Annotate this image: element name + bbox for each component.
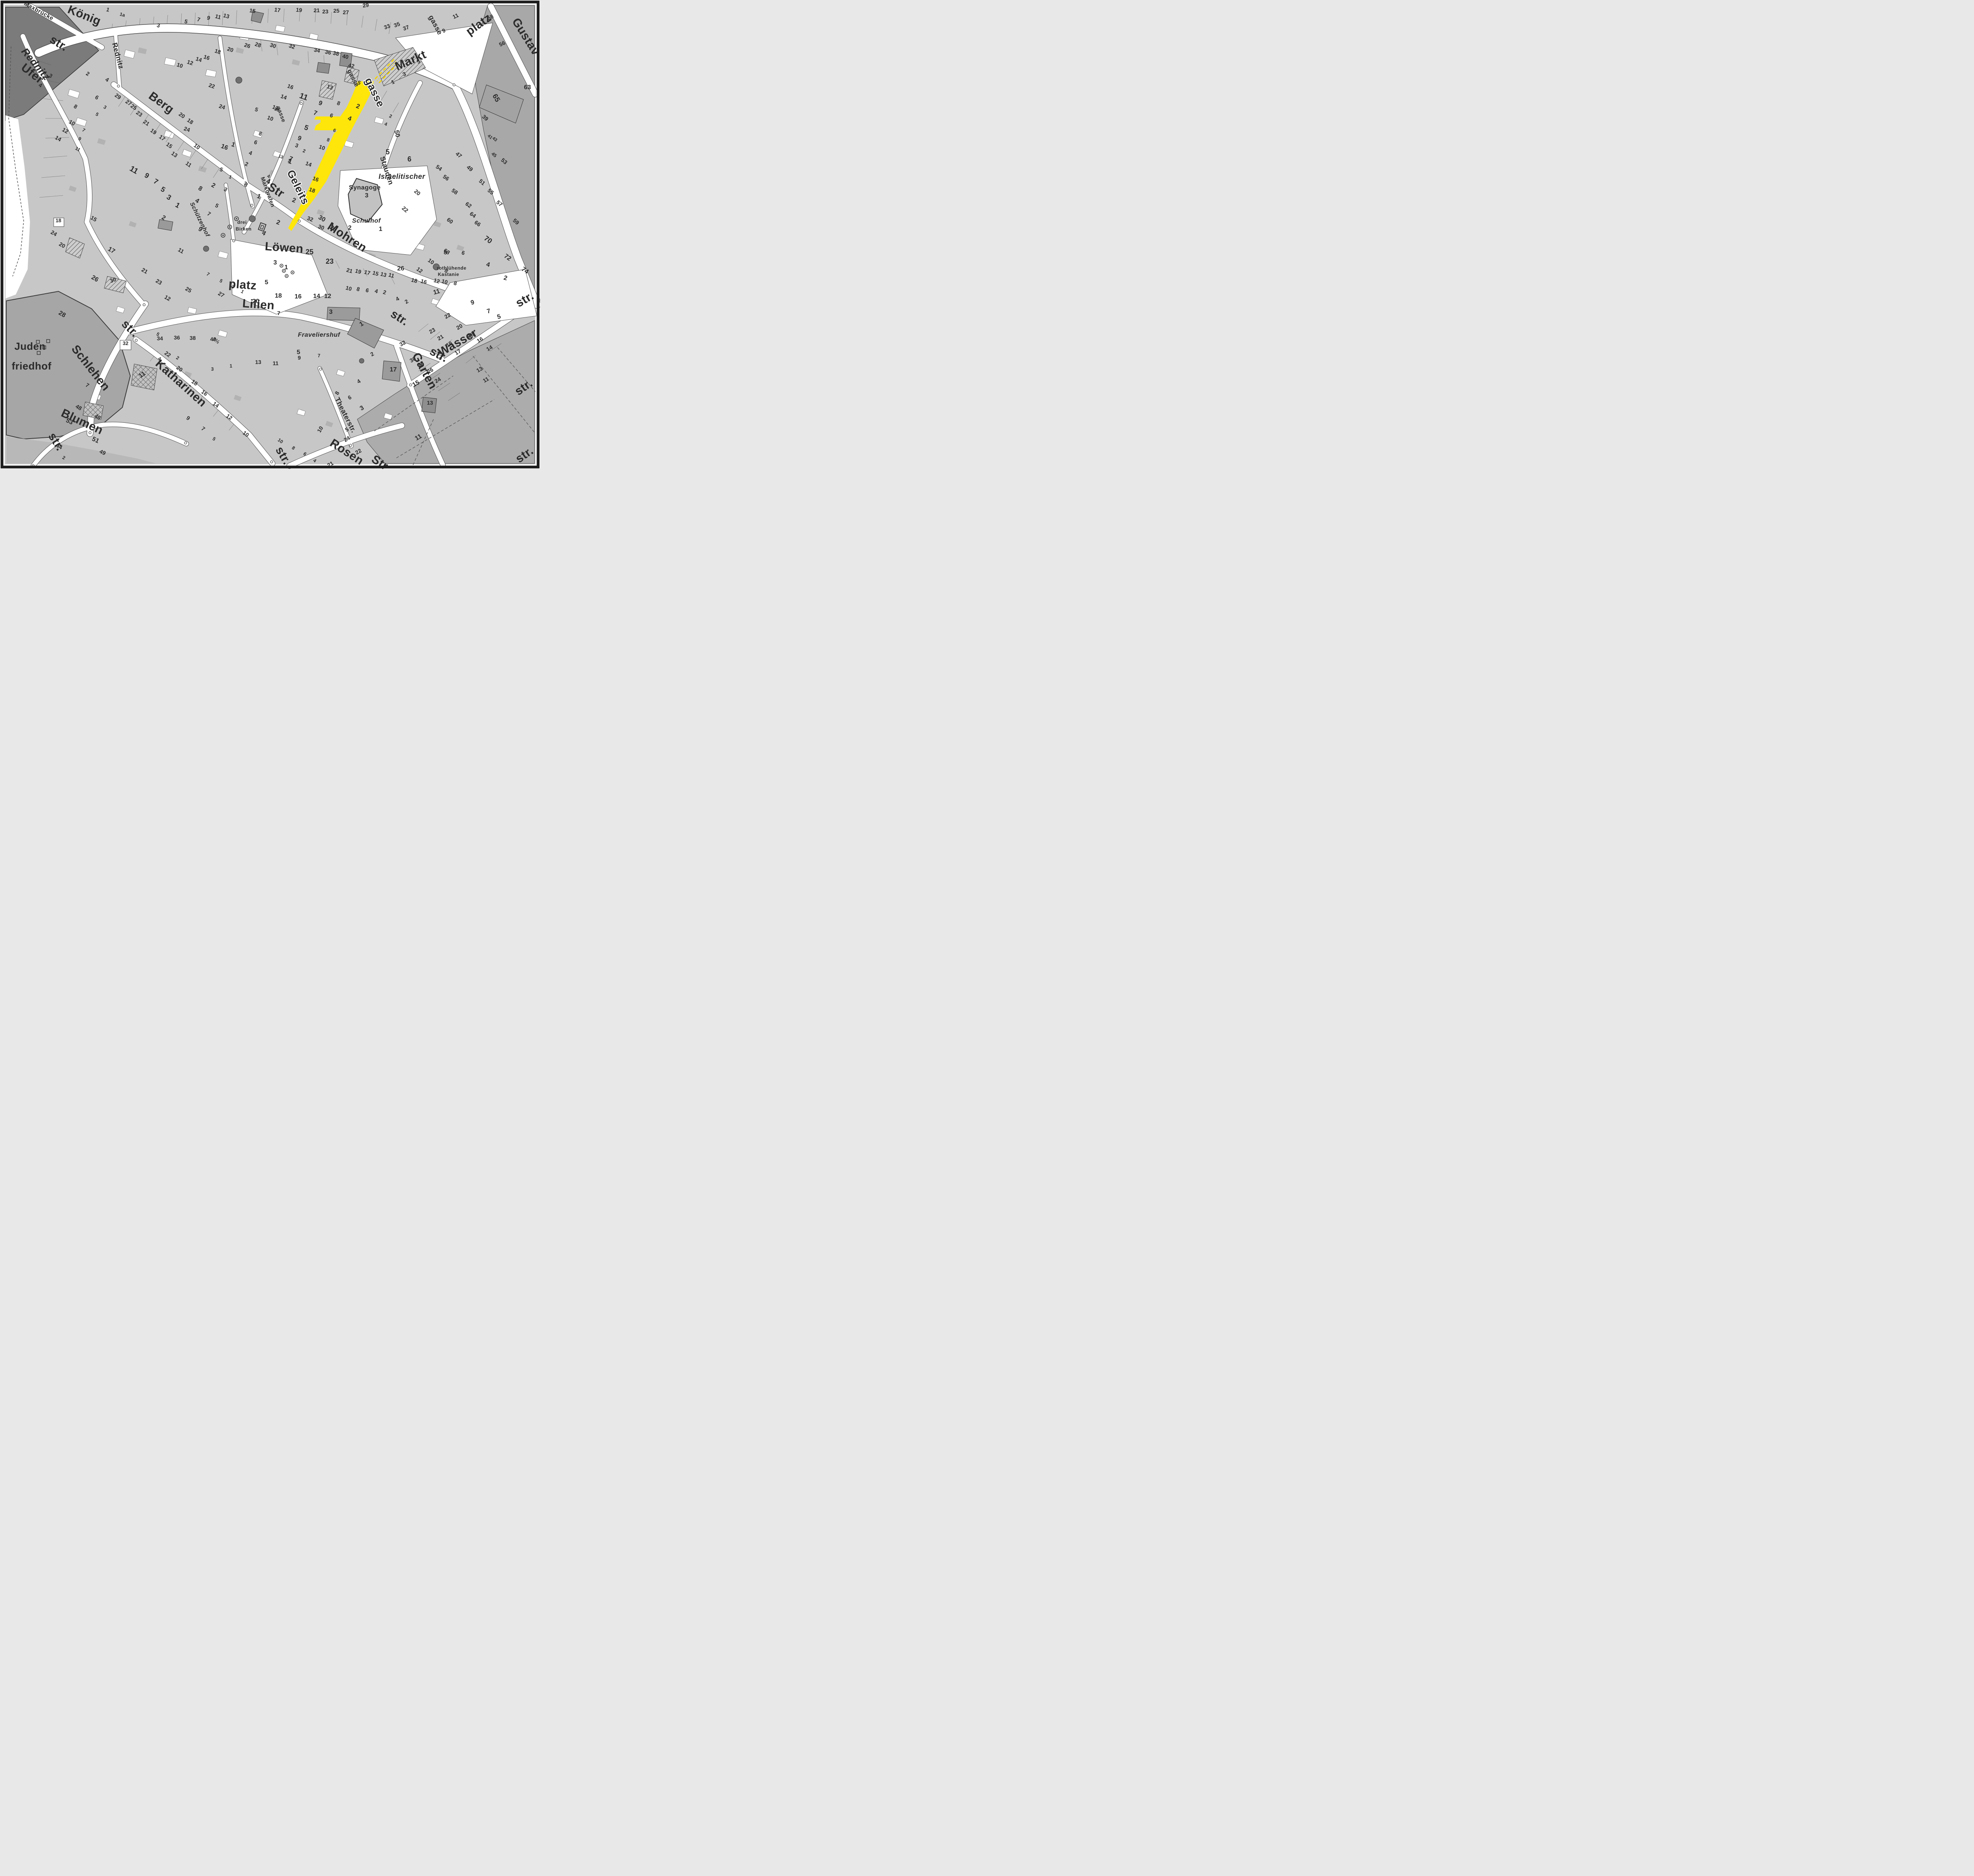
tree-icon: [359, 358, 364, 363]
house-number: 38: [190, 335, 196, 341]
house-number: 1: [230, 363, 233, 369]
city-map: 11a3579111315171921232527293335371012141…: [0, 0, 540, 469]
street-label: Lilien: [242, 297, 275, 312]
tree-ring-center: [222, 234, 224, 236]
boundary-stone-icon: [143, 304, 145, 306]
map-canvas: 11a3579111315171921232527293335371012141…: [0, 0, 540, 469]
boundary-stone-icon: [135, 339, 137, 341]
house-number: 27: [343, 9, 349, 15]
landmark-label: Juden: [14, 340, 45, 352]
house-number: 13: [427, 400, 433, 406]
dark-building-a: [317, 62, 330, 73]
tree-icon: [203, 246, 209, 251]
house-number: 9: [298, 355, 301, 361]
landmark-label: Kastanie: [438, 272, 459, 277]
house-number: 12: [324, 293, 331, 300]
boundary-stone-icon: [409, 384, 412, 386]
house-number: 16: [295, 293, 302, 300]
boundary-stone-icon: [184, 442, 187, 444]
house-number: 21: [313, 7, 320, 13]
boundary-stone-icon: [300, 102, 302, 105]
tree-icon: [236, 77, 242, 83]
landmark-label: rotblühende: [437, 265, 467, 271]
boundary-stone-icon: [270, 461, 273, 463]
house-number: 63: [524, 84, 531, 91]
house-number: 7: [277, 310, 280, 316]
house-number: 14: [313, 293, 320, 300]
house-number: 1: [285, 264, 288, 271]
house-number: 23: [326, 257, 334, 265]
boundary-stone-icon: [117, 85, 120, 87]
house-number: 25: [333, 8, 340, 14]
boundary-stone-icon: [319, 368, 322, 370]
house-number: 36: [174, 334, 180, 341]
street-label: Löwen: [265, 240, 304, 256]
landmark-label: Schulhof: [352, 218, 381, 224]
house-number: 32: [123, 340, 128, 346]
landmark-label: drei: [237, 219, 247, 225]
house-number: 13: [255, 359, 261, 365]
house-number: 1: [379, 226, 383, 233]
house-number: 5: [265, 279, 268, 286]
street-label: platz: [228, 278, 257, 293]
house-number: 11: [273, 360, 279, 366]
house-number: 17: [274, 6, 281, 13]
house-number: 25: [306, 248, 313, 256]
boundary-stone-icon: [453, 84, 455, 86]
boundary-stone-icon: [233, 240, 235, 242]
landmark-label: friedhof: [12, 360, 52, 372]
house-number: 3: [329, 309, 333, 315]
house-number: 5: [386, 148, 390, 156]
tree-ring-center: [229, 226, 231, 228]
landmark-label: Fraveliershuf: [298, 332, 341, 338]
tree-icon: [249, 216, 255, 222]
house-number: 18: [56, 218, 61, 223]
house-number: 23: [322, 8, 328, 15]
tree-ring-center: [281, 265, 282, 266]
house-number: 19: [296, 6, 302, 13]
house-number: 26: [397, 265, 404, 272]
boundary-stone-icon: [251, 204, 253, 206]
landmark-label: Birken: [236, 226, 251, 232]
house-number: 15: [249, 7, 256, 14]
house-number: 3: [211, 366, 214, 372]
house-number: 7: [318, 353, 321, 358]
tree-ring-center: [292, 272, 293, 273]
landmark-label: Synagoge: [349, 184, 381, 191]
house-number: 3: [274, 259, 277, 266]
boundary-stone-icon: [298, 220, 300, 222]
landmark-label: 3: [365, 192, 368, 199]
tree-ring-center: [286, 276, 287, 277]
house-number: 6: [407, 155, 411, 163]
landmark-label: Israelitischer: [379, 173, 426, 180]
house-number: 17: [390, 366, 397, 373]
house-number: 18: [275, 293, 282, 299]
